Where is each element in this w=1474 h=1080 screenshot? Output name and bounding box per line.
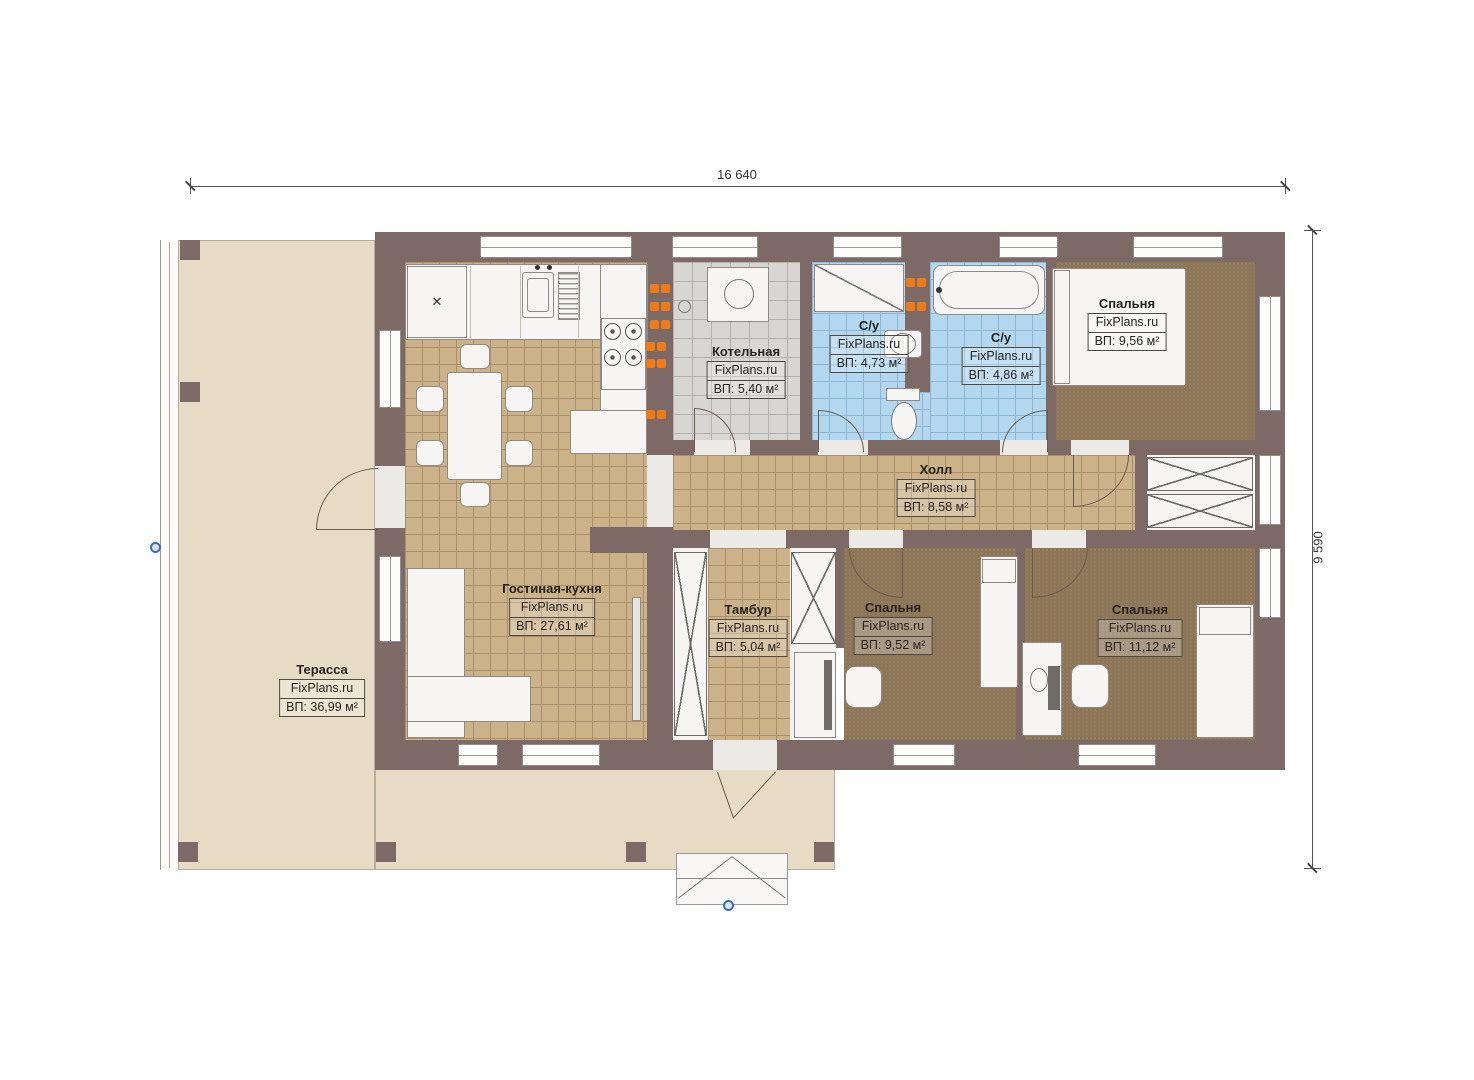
label-box: FixPlans.ru ВП: 5,40 м² (707, 361, 786, 399)
label-box: FixPlans.ru ВП: 9,52 м² (854, 617, 933, 655)
room-name: С/у (962, 330, 1041, 345)
chair (416, 440, 444, 466)
kitchen-cabinet (570, 410, 647, 454)
window (1078, 744, 1156, 766)
room-name: Терасса (279, 662, 365, 677)
window (1259, 296, 1281, 411)
terrace-edge-band (160, 240, 180, 870)
chair (460, 482, 490, 507)
label-box: FixPlans.ru ВП: 8,58 м² (897, 479, 976, 517)
counter-divider (520, 266, 521, 338)
watermark: FixPlans.ru (1099, 620, 1182, 639)
desk-monitor (1048, 666, 1060, 710)
office-chair (1071, 664, 1109, 708)
sink-drainer (558, 272, 580, 320)
terrace-post (376, 842, 396, 862)
outlet-icon (646, 342, 655, 351)
sink-bowl (527, 278, 549, 312)
bathtub-faucet (936, 287, 942, 293)
chair (460, 344, 490, 369)
watermark: FixPlans.ru (510, 599, 594, 618)
room-name: Гостиная-кухня (502, 581, 602, 596)
dimension-line-top (190, 186, 1285, 187)
survey-marker (150, 542, 161, 553)
room-label-boiler: Котельная FixPlans.ru ВП: 5,40 м² (707, 344, 786, 399)
room-area: ВП: 11,12 м² (1099, 639, 1182, 657)
watermark: FixPlans.ru (710, 620, 787, 639)
room-name: Спальня (1088, 296, 1167, 311)
dimension-width-label: 16 640 (717, 167, 757, 182)
door-opening-bedroom-top (1071, 440, 1129, 455)
terrace-post (180, 240, 200, 260)
survey-marker (723, 900, 734, 911)
watermark: FixPlans.ru (708, 362, 785, 381)
door-opening-terrace (375, 466, 405, 528)
opening-tambour (710, 530, 786, 548)
tv-panel (632, 597, 641, 721)
outlet-icon (650, 320, 659, 329)
outlet-icon (646, 410, 655, 419)
closet (791, 552, 836, 644)
window (522, 744, 600, 766)
room-label-tambour: Тамбур FixPlans.ru ВП: 5,04 м² (709, 602, 788, 657)
wall-nook-left (1135, 455, 1147, 530)
outlet-icon (650, 284, 659, 293)
room-name: С/у (830, 318, 909, 333)
outlet-icon (650, 302, 659, 311)
room-label-terrace: Терасса FixPlans.ru ВП: 36,99 м² (279, 662, 365, 717)
bathtub-inner (939, 271, 1039, 309)
toilet-tank (886, 388, 920, 401)
room-name: Холл (897, 462, 976, 477)
room-name: Спальня (854, 600, 933, 615)
window (1133, 236, 1223, 258)
room-label-bathroom1: С/у FixPlans.ru ВП: 4,73 м² (830, 318, 909, 373)
label-box: FixPlans.ru ВП: 27,61 м² (509, 598, 595, 636)
label-box: FixPlans.ru ВП: 5,04 м² (709, 619, 788, 657)
door-opening-bedroom-middle (849, 530, 903, 548)
wall-living-tambour (647, 548, 673, 740)
terrace-post (626, 842, 646, 862)
room-area: ВП: 5,04 м² (710, 639, 787, 657)
stove-burner (625, 349, 642, 366)
room-area: ВП: 4,73 м² (831, 355, 908, 373)
wardrobe (1147, 494, 1253, 528)
closet (674, 552, 707, 736)
room-area: ВП: 8,58 м² (898, 499, 975, 517)
stove-burner (604, 323, 621, 340)
room-area: ВП: 36,99 м² (280, 699, 364, 717)
door-opening-entrance (713, 740, 777, 770)
entrance-steps (676, 853, 788, 905)
stove-burner (625, 323, 642, 340)
wall-nook-bedroom (836, 548, 844, 648)
outlet-icon (906, 302, 915, 311)
window (379, 556, 401, 642)
shower (814, 264, 904, 312)
room-label-bathroom2: С/у FixPlans.ru ВП: 4,86 м² (962, 330, 1041, 385)
step-line (676, 878, 788, 879)
fridge-icon: ✕ (407, 266, 467, 338)
room-area: ВП: 27,61 м² (510, 618, 594, 636)
window (893, 744, 955, 766)
sofa-chaise (407, 676, 531, 722)
stove-burner (604, 349, 621, 366)
window (480, 236, 632, 258)
passage-threshold (647, 455, 673, 530)
outlet-icon (906, 278, 915, 287)
floor-drain (678, 300, 691, 313)
counter-divider (470, 266, 471, 338)
room-name: Котельная (707, 344, 786, 359)
watermark: FixPlans.ru (831, 336, 908, 355)
window (999, 236, 1058, 258)
room-area: ВП: 9,56 м² (1089, 333, 1166, 351)
desk-monitor (824, 660, 832, 730)
toilet-bowl (891, 402, 917, 440)
chair (505, 440, 533, 466)
faucet-dot (535, 265, 540, 270)
room-area: ВП: 9,52 м² (855, 637, 932, 655)
bed-headboard (1054, 270, 1070, 384)
fridge-mark: ✕ (432, 294, 443, 310)
office-chair (845, 666, 882, 708)
window (1259, 548, 1281, 618)
room-area: ВП: 5,40 м² (708, 381, 785, 399)
window (379, 330, 401, 408)
chair (416, 386, 444, 412)
bed-pillow (982, 559, 1016, 583)
room-label-bedroom-middle: Спальня FixPlans.ru ВП: 9,52 м² (854, 600, 933, 655)
label-box: FixPlans.ru ВП: 9,56 м² (1088, 313, 1167, 351)
room-label-living-kitchen: Гостиная-кухня FixPlans.ru ВП: 27,61 м² (502, 581, 602, 636)
faucet-dot (547, 265, 552, 270)
dining-table (447, 372, 502, 480)
bed-pillow (1199, 607, 1251, 635)
room-label-hall: Холл FixPlans.ru ВП: 8,58 м² (897, 462, 976, 517)
watermark: FixPlans.ru (855, 618, 932, 637)
label-box: FixPlans.ru ВП: 4,73 м² (830, 335, 909, 373)
room-area: ВП: 4,86 м² (963, 367, 1040, 385)
chair (505, 386, 533, 412)
room-name: Спальня (1098, 602, 1183, 617)
terrace-edge-line (169, 242, 170, 868)
counter-divider (578, 266, 579, 338)
window (833, 236, 902, 258)
room-label-bedroom-top: Спальня FixPlans.ru ВП: 9,56 м² (1088, 296, 1167, 351)
room-label-bedroom-right: Спальня FixPlans.ru ВП: 11,12 м² (1098, 602, 1183, 657)
outlet-icon (646, 359, 655, 368)
terrace-post (814, 842, 834, 862)
label-box: FixPlans.ru ВП: 11,12 м² (1098, 619, 1183, 657)
terrace-post (180, 382, 200, 402)
window (672, 236, 758, 258)
watermark: FixPlans.ru (280, 680, 364, 699)
label-box: FixPlans.ru ВП: 4,86 м² (962, 347, 1041, 385)
wardrobe (1147, 457, 1253, 491)
wall-boiler-bath1 (800, 262, 812, 440)
terrace-floor (178, 240, 375, 870)
desk-chair-item (1030, 668, 1048, 692)
washer-drum (724, 279, 754, 309)
watermark: FixPlans.ru (963, 348, 1040, 367)
room-name: Тамбур (709, 602, 788, 617)
door-opening-bedroom-right (1032, 530, 1086, 548)
window (458, 744, 498, 766)
label-box: FixPlans.ru ВП: 36,99 м² (279, 679, 365, 717)
watermark: FixPlans.ru (1089, 314, 1166, 333)
window (1259, 455, 1281, 525)
dimension-height-label: 9 590 (1311, 526, 1326, 570)
floor-plan: 16 640 9 590 (0, 0, 1474, 1080)
terrace-post (178, 842, 198, 862)
watermark: FixPlans.ru (898, 480, 975, 499)
